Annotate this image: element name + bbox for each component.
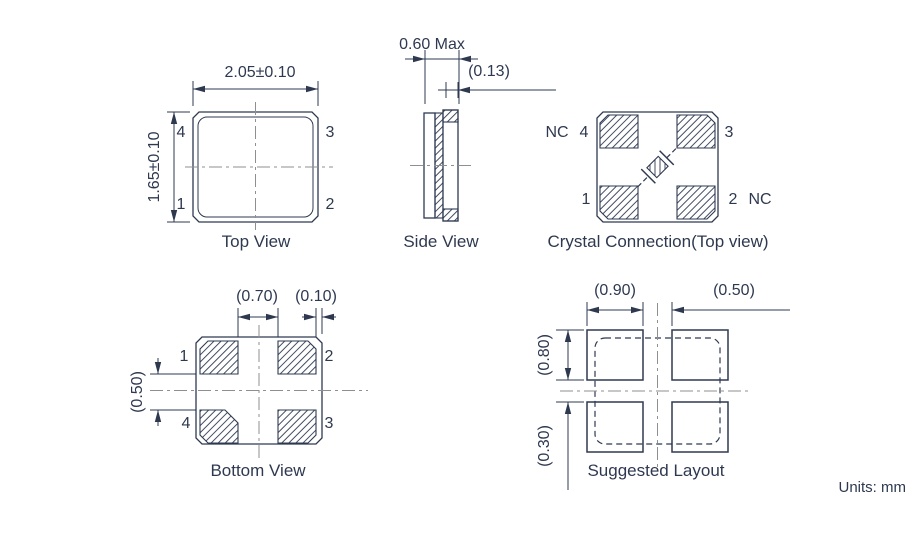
view-label: Side View xyxy=(403,232,479,251)
pin-number: 2 xyxy=(326,196,335,213)
package-drawing-page: 2.05±0.10 1.65±0.10 4 3 1 2 Top View 0.6… xyxy=(0,0,908,538)
side-terminal-bottom xyxy=(443,209,458,221)
layout-vertical-gap-dimension: (0.30) xyxy=(536,402,584,490)
pad-3 xyxy=(677,115,715,148)
view-label: Bottom View xyxy=(210,461,306,480)
bottom-view-edge-dimension: (0.10) xyxy=(295,288,337,338)
dimension-text: (0.70) xyxy=(236,288,278,305)
dimension-text: (0.80) xyxy=(536,334,553,376)
pin-number: 2 xyxy=(729,191,738,208)
layout-pad-width-dimension: (0.90) xyxy=(587,282,643,326)
dimension-text: 1.65±0.10 xyxy=(146,131,163,202)
pin-number: 1 xyxy=(180,348,189,365)
bottom-view-gap-dimension: (0.70) xyxy=(236,288,278,338)
pin-number: 3 xyxy=(325,415,334,432)
dimension-text: (0.50) xyxy=(713,282,755,299)
pin-number: 1 xyxy=(177,196,186,213)
side-view-thickness-dimension: 0.60 Max xyxy=(399,36,478,104)
pin-nc-note: NC xyxy=(545,124,568,141)
technical-drawing: 2.05±0.10 1.65±0.10 4 3 1 2 Top View 0.6… xyxy=(0,0,908,538)
top-view-width-dimension: 2.05±0.10 xyxy=(193,64,318,106)
dimension-text: 0.60 Max xyxy=(399,36,465,53)
bottom-view: (0.70) (0.10) (0.50) 1 2 4 3 Bottom View xyxy=(129,288,368,480)
view-label: Top View xyxy=(222,232,291,251)
units-note: Units: mm xyxy=(839,479,907,496)
pin-number: 3 xyxy=(326,124,335,141)
dimension-text: (0.13) xyxy=(468,63,510,80)
side-view: 0.60 Max (0.13) Side View xyxy=(399,36,556,251)
view-label: Suggested Layout xyxy=(587,461,724,480)
dimension-text: (0.30) xyxy=(536,425,553,467)
side-terminal-top xyxy=(443,110,458,122)
top-view: 2.05±0.10 1.65±0.10 4 3 1 2 Top View xyxy=(146,64,335,251)
pin-number: 3 xyxy=(725,124,734,141)
suggested-layout-view: (0.90) (0.50) (0.80) (0.30) Suggested La… xyxy=(536,282,790,490)
pin-number: 4 xyxy=(182,415,191,432)
pad-2 xyxy=(278,341,316,374)
crystal-connection-view: NC 4 3 1 2 NC Crystal Connection(Top vie… xyxy=(545,112,771,251)
pad-4 xyxy=(600,115,638,148)
layout-gap-dimension: (0.50) xyxy=(672,282,790,326)
pin-number: 4 xyxy=(580,124,589,141)
pin-number: 4 xyxy=(177,124,186,141)
layout-pad-height-dimension: (0.80) xyxy=(536,330,584,380)
pin-number: 1 xyxy=(582,191,591,208)
pad-1 xyxy=(200,341,238,374)
pad-1 xyxy=(600,186,638,219)
dimension-text: (0.90) xyxy=(594,282,636,299)
pad-3 xyxy=(278,410,316,443)
pin-number: 2 xyxy=(325,348,334,365)
pad-2 xyxy=(677,186,715,219)
side-view-terminal-dimension: (0.13) xyxy=(438,63,556,98)
pin-nc-note: NC xyxy=(748,191,771,208)
view-label: Crystal Connection(Top view) xyxy=(547,232,768,251)
dimension-text: (0.10) xyxy=(295,288,337,305)
dimension-text: 2.05±0.10 xyxy=(224,64,295,81)
layout-pad xyxy=(587,402,643,452)
dimension-text: (0.50) xyxy=(129,371,146,413)
